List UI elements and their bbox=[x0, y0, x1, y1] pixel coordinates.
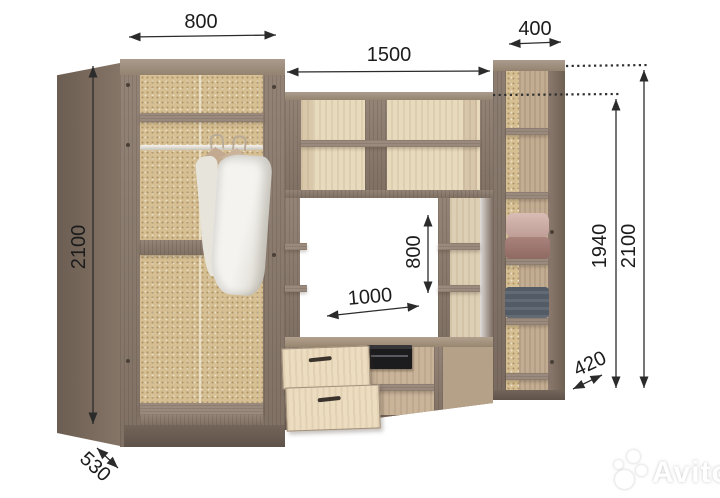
dim-label-center-width: 1500 bbox=[359, 44, 419, 66]
avito-logo-dot bbox=[614, 460, 623, 469]
dim-label-wardrobe-depth: 530 bbox=[69, 442, 121, 492]
dim-label-niche-height: 800 bbox=[403, 227, 425, 277]
dimension-labels: 800 1500 400 2100 800 1000 1940 2100 420… bbox=[0, 0, 720, 498]
dim-label-right-width: 400 bbox=[510, 18, 560, 40]
avito-logo-dot bbox=[627, 450, 640, 463]
avito-watermark-text: Avito bbox=[652, 456, 720, 490]
dim-label-right-inner-height: 1940 bbox=[589, 216, 611, 276]
dim-label-right-height: 2100 bbox=[618, 216, 640, 276]
furniture-dimension-diagram: 800 1500 400 2100 800 1000 1940 2100 420… bbox=[0, 0, 720, 498]
dim-label-left-height: 2100 bbox=[68, 217, 90, 277]
dim-label-niche-width: 1000 bbox=[339, 283, 401, 310]
avito-logo-dot bbox=[636, 465, 647, 476]
dim-label-wardrobe-width: 800 bbox=[176, 11, 226, 33]
dim-label-right-depth: 420 bbox=[563, 343, 618, 384]
avito-watermark: Avito bbox=[612, 444, 720, 496]
avito-logo-dot bbox=[615, 470, 634, 489]
